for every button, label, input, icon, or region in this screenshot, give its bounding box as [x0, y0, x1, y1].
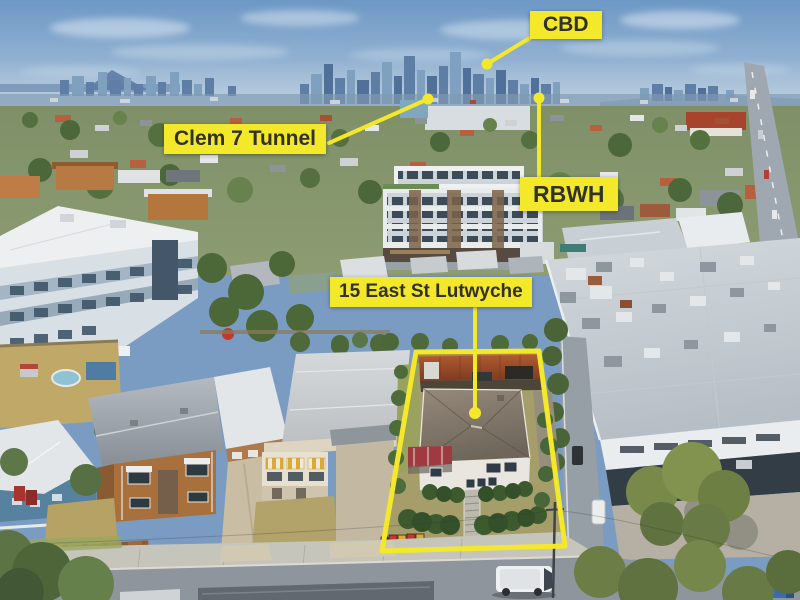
callout-label-cbd: CBD: [530, 11, 602, 39]
leader-line-clem7: [329, 99, 428, 143]
callout-label-rbwh: RBWH: [520, 177, 618, 211]
location-dot-rbwh: [534, 93, 545, 104]
callout-label-property-address: 15 East St Lutwyche: [330, 277, 532, 307]
location-dot-cbd: [482, 59, 493, 70]
location-dot-clem7: [423, 94, 434, 105]
callout-label-clem7-tunnel: Clem 7 Tunnel: [164, 124, 326, 154]
aerial-photo: CBD Clem 7 Tunnel RBWH 15 East St Lutwyc…: [0, 0, 800, 600]
location-dot-property: [469, 407, 481, 419]
leader-line-cbd: [487, 36, 533, 64]
